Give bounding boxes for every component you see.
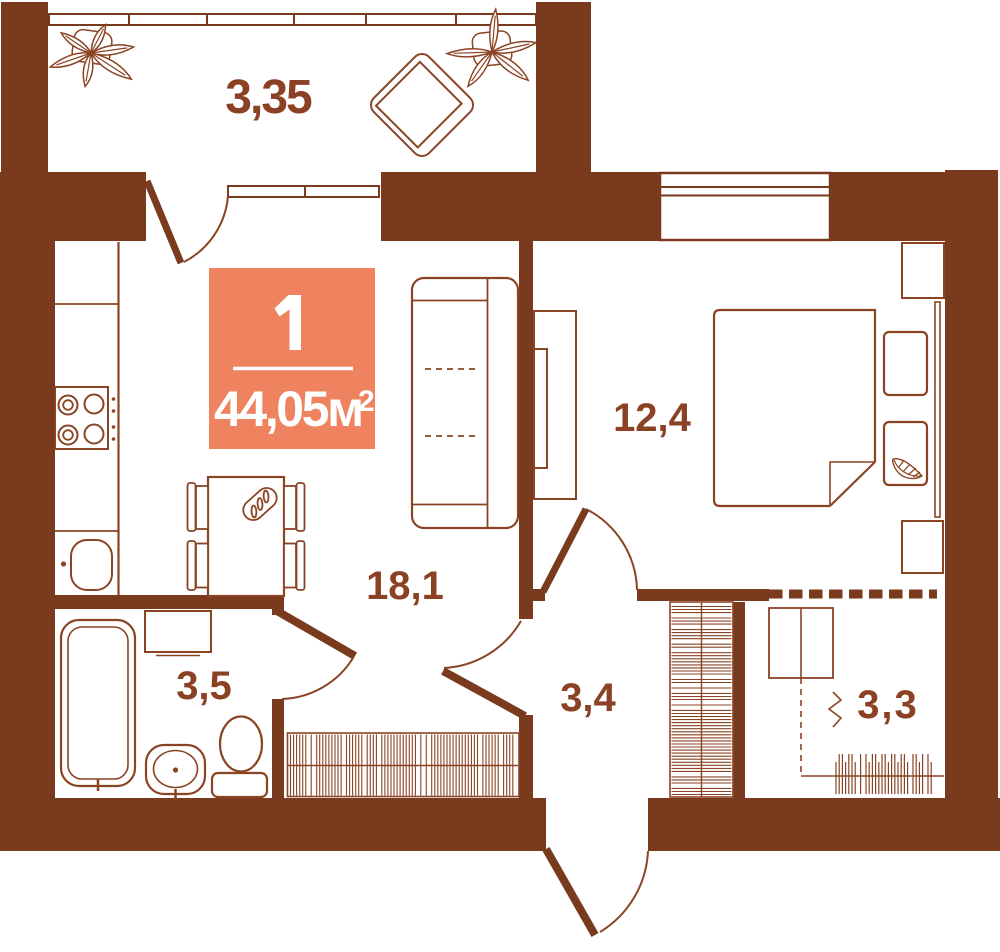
svg-text:3,35: 3,35 [225, 71, 312, 124]
svg-text:3,3: 3,3 [857, 683, 919, 727]
svg-text:12,4: 12,4 [613, 396, 692, 440]
svg-text:3,5: 3,5 [176, 664, 232, 708]
svg-text:3,4: 3,4 [560, 676, 616, 720]
svg-text:18,1: 18,1 [366, 564, 444, 608]
svg-text:2: 2 [358, 385, 375, 418]
svg-text:44,05м: 44,05м [214, 381, 362, 437]
